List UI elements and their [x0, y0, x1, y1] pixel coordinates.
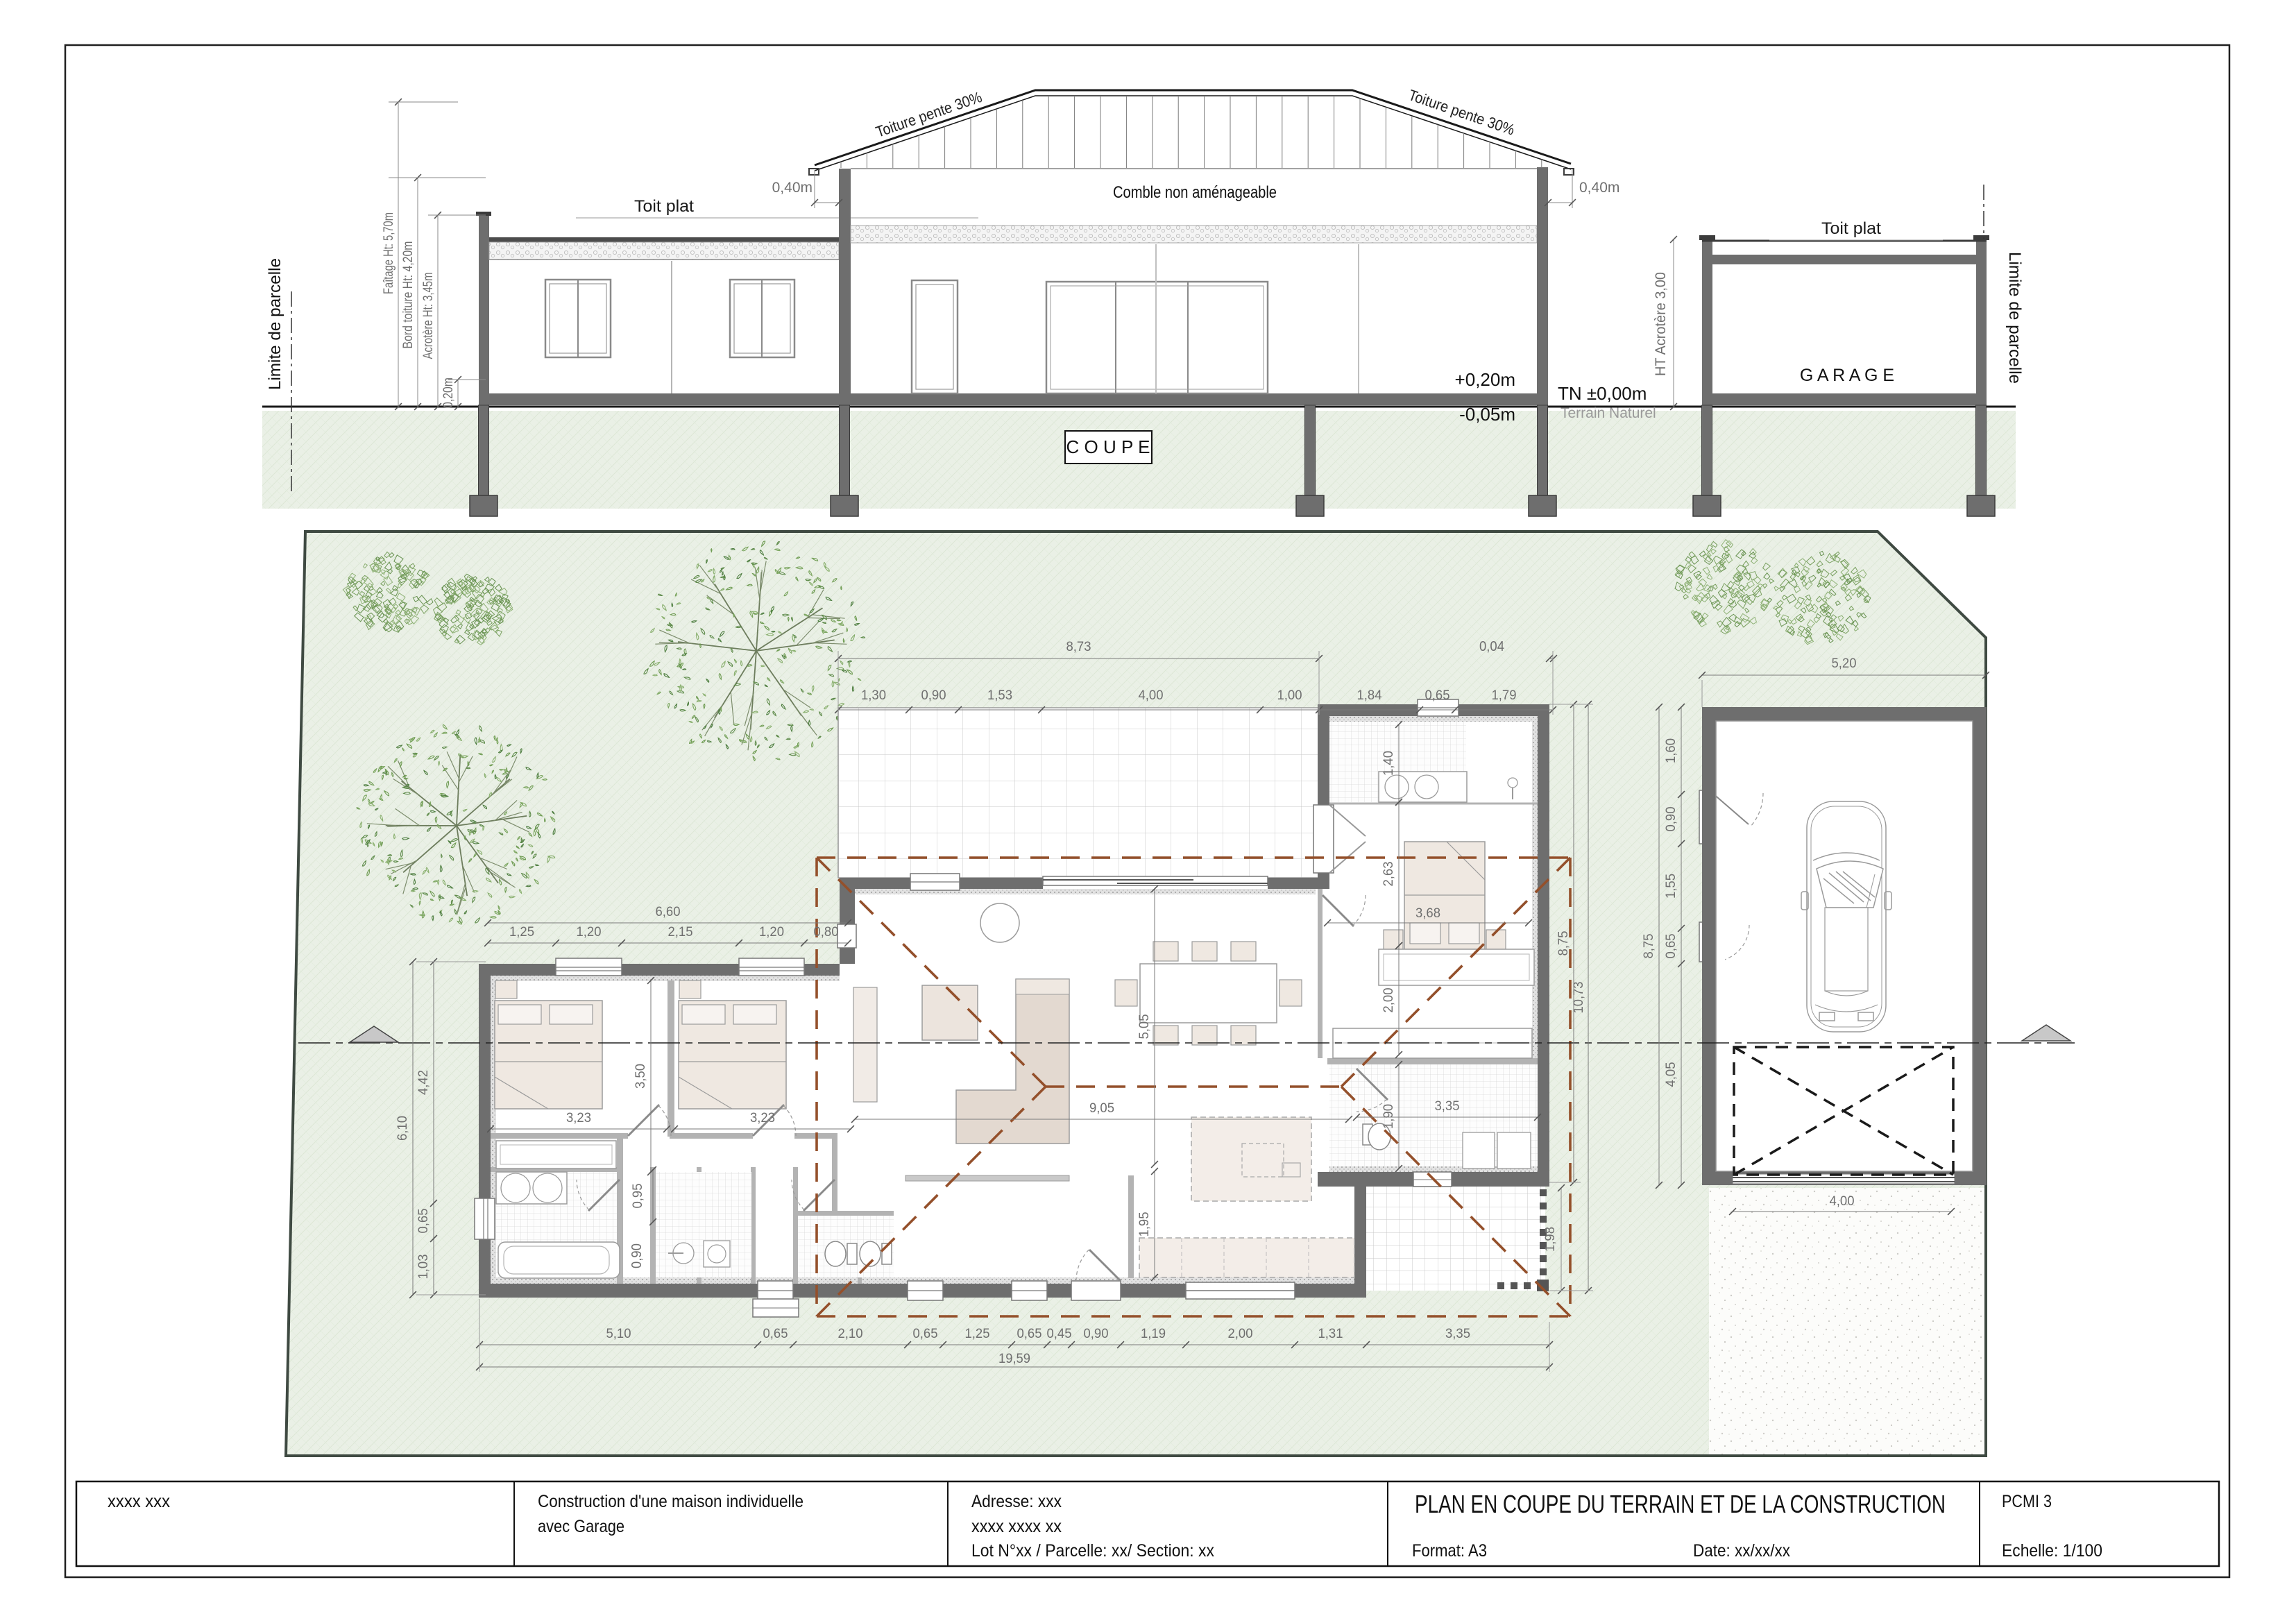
svg-text:G A R A G E: G A R A G E — [1800, 366, 1894, 385]
svg-text:3,35: 3,35 — [1435, 1099, 1460, 1114]
svg-text:PCMI 3: PCMI 3 — [2002, 1492, 2052, 1511]
svg-text:Limite de parcelle: Limite de parcelle — [2005, 252, 2024, 384]
svg-text:2,00: 2,00 — [1381, 988, 1396, 1013]
svg-text:19,59: 19,59 — [998, 1352, 1030, 1366]
svg-text:Comble non aménageable: Comble non aménageable — [1113, 183, 1277, 202]
svg-text:0,80: 0,80 — [814, 925, 839, 940]
svg-text:9,05: 9,05 — [1089, 1101, 1114, 1116]
svg-text:Echelle: 1/100: Echelle: 1/100 — [2002, 1541, 2102, 1561]
svg-text:0,40m: 0,40m — [772, 180, 813, 196]
svg-text:Toit plat: Toit plat — [634, 197, 694, 216]
svg-text:1,25: 1,25 — [509, 925, 534, 940]
svg-text:1,20: 1,20 — [577, 925, 602, 940]
svg-text:Terrain Naturel: Terrain Naturel — [1561, 405, 1656, 421]
svg-text:1,55: 1,55 — [1664, 874, 1678, 899]
svg-text:1,30: 1,30 — [861, 688, 886, 703]
svg-text:1,95: 1,95 — [1137, 1212, 1152, 1237]
svg-text:2,10: 2,10 — [838, 1327, 863, 1341]
svg-text:+0,20m: +0,20m — [1455, 369, 1515, 390]
svg-text:C O U P E: C O U P E — [1066, 436, 1150, 457]
svg-text:8,75: 8,75 — [1556, 931, 1571, 956]
svg-text:6,60: 6,60 — [656, 905, 681, 919]
svg-text:3,68: 3,68 — [1415, 906, 1440, 921]
svg-text:0,04: 0,04 — [1479, 639, 1504, 654]
svg-text:PLAN EN COUPE DU TERRAIN ET DE: PLAN EN COUPE DU TERRAIN ET DE LA CONSTR… — [1415, 1490, 1946, 1518]
svg-text:1,31: 1,31 — [1318, 1327, 1343, 1341]
svg-text:Construction d'une maison indi: Construction d'une maison individuelle — [538, 1492, 803, 1511]
svg-text:Faîtage Ht: 5,70m: Faîtage Ht: 5,70m — [382, 212, 396, 294]
svg-text:0,45: 0,45 — [1047, 1327, 1072, 1341]
svg-text:1,84: 1,84 — [1357, 688, 1382, 703]
svg-text:xxxx xxx: xxxx xxx — [108, 1492, 170, 1511]
svg-text:Bord toiture Ht: 4,20m: Bord toiture Ht: 4,20m — [401, 241, 416, 349]
svg-text:4,00: 4,00 — [1139, 688, 1164, 703]
svg-text:3,23: 3,23 — [750, 1111, 775, 1125]
svg-text:0,95: 0,95 — [631, 1184, 645, 1209]
svg-text:4,05: 4,05 — [1664, 1062, 1678, 1087]
svg-text:2,15: 2,15 — [668, 925, 693, 940]
svg-text:0,90: 0,90 — [1664, 807, 1678, 832]
svg-text:1,40: 1,40 — [1381, 751, 1396, 776]
svg-text:Lot N°xx / Parcelle: xx/ Secti: Lot N°xx / Parcelle: xx/ Section: xx — [971, 1541, 1214, 1561]
svg-text:5,20: 5,20 — [1832, 656, 1857, 671]
svg-text:1,03: 1,03 — [416, 1255, 431, 1280]
svg-text:Format: A3: Format: A3 — [1412, 1541, 1487, 1561]
svg-text:xxxx xxxx xx: xxxx xxxx xx — [971, 1517, 1062, 1536]
svg-text:6,10: 6,10 — [396, 1116, 410, 1141]
svg-text:1,53: 1,53 — [987, 688, 1012, 703]
svg-text:1,20: 1,20 — [759, 925, 784, 940]
svg-text:Date: xx/xx/xx: Date: xx/xx/xx — [1693, 1541, 1790, 1561]
svg-text:0,40m: 0,40m — [1579, 180, 1619, 196]
svg-text:8,75: 8,75 — [1642, 934, 1656, 959]
svg-text:3,50: 3,50 — [633, 1064, 648, 1089]
svg-text:0,65: 0,65 — [1017, 1327, 1042, 1341]
svg-text:HT Acrotère 3,00: HT Acrotère 3,00 — [1653, 272, 1669, 376]
svg-text:1,60: 1,60 — [1664, 738, 1678, 763]
svg-text:0,65: 0,65 — [913, 1327, 938, 1341]
svg-text:3,23: 3,23 — [566, 1111, 591, 1125]
svg-text:8,73: 8,73 — [1066, 640, 1091, 654]
svg-text:1,25: 1,25 — [965, 1327, 990, 1341]
svg-text:0,90: 0,90 — [629, 1243, 645, 1268]
svg-text:2,00: 2,00 — [1228, 1327, 1253, 1341]
svg-text:10,73: 10,73 — [1572, 982, 1586, 1014]
svg-text:0,65: 0,65 — [1425, 688, 1450, 703]
svg-text:5,10: 5,10 — [606, 1327, 631, 1341]
svg-text:1,79: 1,79 — [1492, 688, 1517, 703]
svg-text:0,65: 0,65 — [763, 1327, 788, 1341]
svg-text:Adresse: xxx: Adresse: xxx — [971, 1492, 1062, 1511]
svg-text:0,20m: 0,20m — [441, 377, 456, 408]
svg-text:0,90: 0,90 — [1084, 1327, 1109, 1341]
svg-text:1,00: 1,00 — [1277, 688, 1302, 703]
svg-text:0,65: 0,65 — [1664, 934, 1678, 959]
svg-text:2,63: 2,63 — [1381, 862, 1396, 887]
svg-text:0,90: 0,90 — [921, 688, 946, 703]
svg-text:TN ±0,00m: TN ±0,00m — [1558, 383, 1647, 404]
svg-text:1,98: 1,98 — [1543, 1227, 1558, 1252]
svg-text:avec Garage: avec Garage — [538, 1517, 624, 1536]
svg-text:3,35: 3,35 — [1445, 1327, 1470, 1341]
svg-text:1,90: 1,90 — [1381, 1104, 1396, 1129]
svg-text:-0,05m: -0,05m — [1459, 404, 1515, 425]
svg-text:Acrotère Ht: 3,45m: Acrotère Ht: 3,45m — [421, 273, 436, 359]
svg-text:4,42: 4,42 — [416, 1070, 431, 1095]
svg-text:0,65: 0,65 — [416, 1209, 431, 1234]
svg-text:4,00: 4,00 — [1830, 1194, 1855, 1209]
svg-text:1,19: 1,19 — [1141, 1327, 1166, 1341]
svg-text:Toit plat: Toit plat — [1821, 219, 1881, 238]
svg-text:5,05: 5,05 — [1137, 1014, 1152, 1039]
svg-text:Limite de parcelle: Limite de parcelle — [266, 258, 284, 390]
